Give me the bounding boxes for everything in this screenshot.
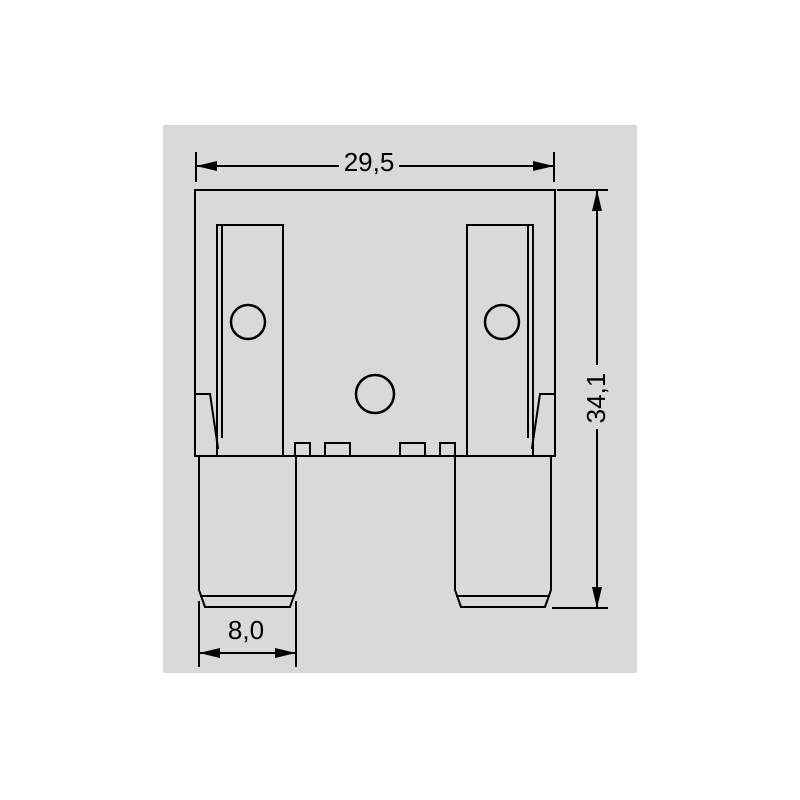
dim-label-overall-height: 34,1 <box>582 368 610 428</box>
dim-label-terminal-width: 8,0 <box>216 616 276 644</box>
fuse-technical-drawing <box>0 0 800 800</box>
drawing-panel <box>163 125 637 673</box>
dim-label-overall-width: 29,5 <box>339 148 399 176</box>
screenshot-canvas: 29,5 34,1 8,0 <box>0 0 800 800</box>
